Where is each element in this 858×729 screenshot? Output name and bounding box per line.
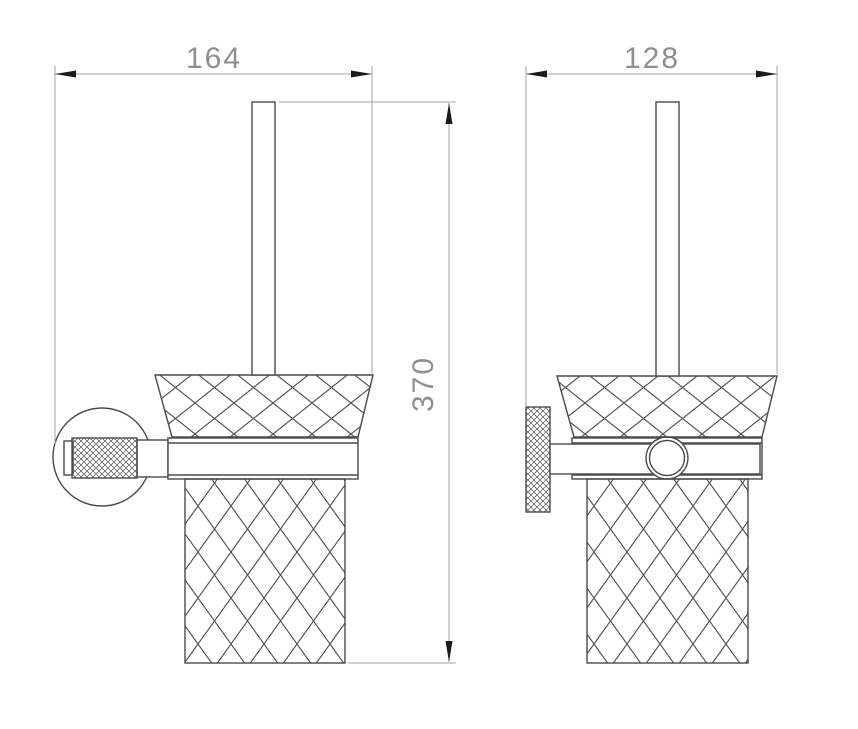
drawing-canvas: 164 370 128 <box>0 0 858 729</box>
side-boss-outer-circle <box>646 437 688 479</box>
front-mount-stem <box>137 440 168 477</box>
side-width-dimension: 128 <box>526 42 777 406</box>
front-height-label: 370 <box>407 356 440 412</box>
front-cup-body <box>185 479 345 663</box>
arrowhead-up-icon <box>446 103 453 124</box>
front-width-label: 164 <box>186 42 242 75</box>
arrowhead-down-icon <box>446 641 453 662</box>
side-knurled-knob <box>526 407 550 512</box>
front-bracket-band <box>168 438 358 479</box>
side-cup-body <box>587 479 748 663</box>
front-brush-handle <box>252 102 275 375</box>
arrowhead-right-icon <box>756 71 777 78</box>
side-width-label: 128 <box>624 42 680 75</box>
arrowhead-left-icon <box>55 71 76 78</box>
side-view <box>526 102 777 663</box>
front-knurled-knob <box>72 438 137 478</box>
side-brush-handle <box>656 102 679 376</box>
front-view <box>53 102 373 663</box>
arrowhead-right-icon <box>351 71 372 78</box>
technical-drawing: 164 370 128 <box>0 0 858 729</box>
side-cup-rim <box>557 376 777 437</box>
arrowhead-left-icon <box>526 71 547 78</box>
front-cup-rim <box>155 375 373 437</box>
